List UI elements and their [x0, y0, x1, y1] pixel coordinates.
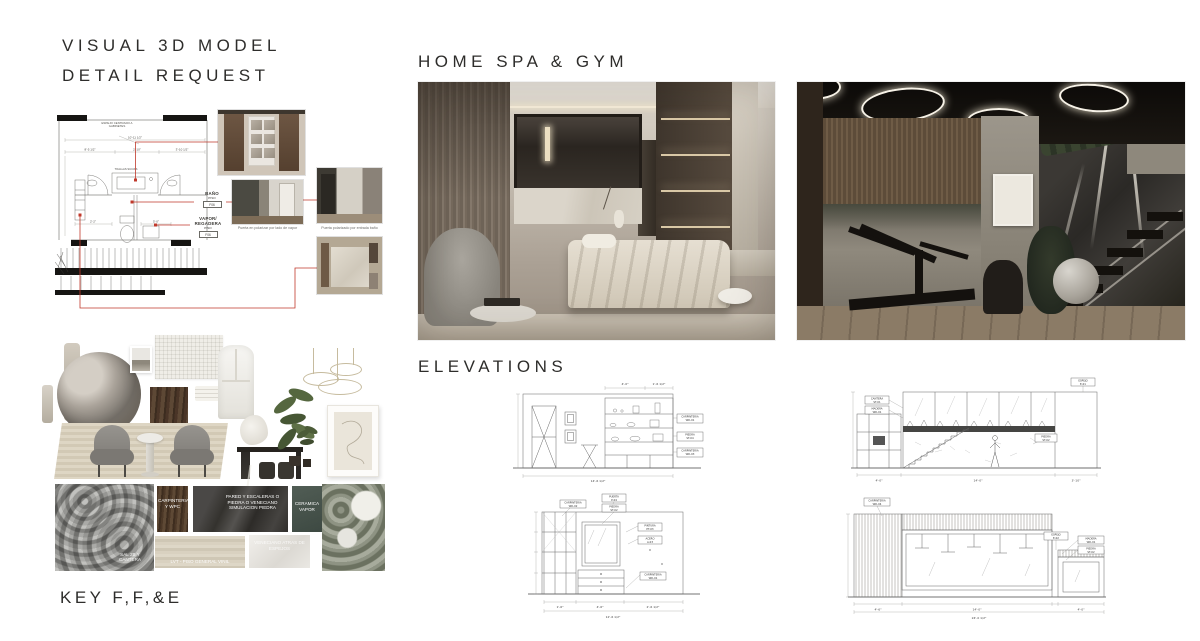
- e1-dim2: 1'-6 1/2": [653, 382, 667, 386]
- art-canvas: [334, 412, 372, 470]
- swatch-veneciano-label: VENECIANO ATRAS DE ESPEJOS: [251, 540, 308, 551]
- chair-seat: [90, 449, 134, 465]
- chair-seat: [170, 449, 214, 465]
- e2-callout1-line2: ST-01: [873, 400, 881, 404]
- e3-dim2: 4'-6": [596, 605, 604, 609]
- e1-callout2-line1: PIEDRA: [685, 433, 695, 437]
- wood-door-right: [279, 114, 299, 171]
- steam-door-thumbnail: [232, 180, 303, 224]
- gym-render: [797, 82, 1185, 340]
- bath-entry-thumbnail: [317, 168, 382, 223]
- plan-label-vapor-sub: PISO: [190, 226, 226, 230]
- e3-callout-right2-line2: A-03: [647, 540, 653, 544]
- dark-wood-swatch: [150, 387, 188, 423]
- e3-dim-text: 1'-6" 4'-6" 2'-6 1/2" 12'-6 1/2": [556, 605, 660, 619]
- e4-callout3-line1: MADERA: [1085, 536, 1096, 540]
- thumbnail-floor: [317, 214, 382, 223]
- e1-drawing: [513, 394, 701, 468]
- wall-sconce-small: [42, 385, 53, 423]
- table-top: [137, 433, 163, 443]
- caption-steam-door: Puerta en polarizar por lado de vapor: [230, 226, 305, 230]
- e2-dim2: 14'-0": [973, 479, 983, 483]
- e3-callout-right2-line1: ACERO: [645, 536, 654, 540]
- e2-callout3-line1: ESPEJO: [1078, 378, 1087, 382]
- presentation-board: VISUAL 3D MODEL DETAIL REQUEST HOME SPA …: [0, 0, 1200, 641]
- page-title-line1: VISUAL 3D MODEL: [62, 36, 281, 56]
- e2-callout3-line2: E-01: [1080, 382, 1086, 386]
- polarized-door: [279, 183, 295, 219]
- wood-slat-wall: [823, 118, 981, 204]
- chandelier-stem: [353, 348, 354, 365]
- robe-opening: [235, 349, 237, 380]
- swatch-veneciano: VENECIANO ATRAS DE ESPEJOS: [249, 535, 310, 568]
- plant-pot: [303, 459, 311, 467]
- e1-shelf-objects: [610, 403, 663, 441]
- e2-callout-boxes: [865, 378, 1095, 442]
- e3-callout-top1-line2: P-04: [611, 498, 617, 502]
- elevation-stair-wall: CANTERA ST-01 MADERA WD-01 ESPEJO E-01 P…: [845, 372, 1105, 484]
- plant-leaf: [300, 438, 314, 445]
- e3-dim3: 2'-6 1/2": [647, 605, 661, 609]
- elevation-vanity-wall: CARPINTERIA WD-02 PUERTA P-04 PIEDRA ST-…: [510, 492, 710, 620]
- e4-callout3-line2: WD-01: [1087, 540, 1096, 544]
- e2-callout2-line2: WD-01: [873, 410, 882, 414]
- swatch-lvt-floor: LVT - PISO GENERAL VINIL: [155, 536, 245, 568]
- ffe-mood-board: [40, 333, 392, 483]
- robe-belt: [222, 380, 249, 382]
- exercise-ball: [1053, 258, 1099, 304]
- e1-dim3: 14'-6 1/2": [591, 479, 606, 483]
- e2-dim-text: 4'-0" 14'-0" 3'-10": [875, 479, 1081, 483]
- chandelier-ring: [318, 379, 362, 395]
- chandelier-stem: [313, 348, 314, 374]
- plan-note-toallas: TOALLAS SUCIAS: [115, 167, 138, 171]
- e4-dim-total: 24'-0 1/2": [972, 616, 987, 620]
- photo-image: [132, 348, 150, 371]
- e1-dim1: 4'-0": [621, 382, 629, 386]
- chair-leg: [178, 465, 180, 477]
- e3-dim1: 1'-6": [556, 605, 564, 609]
- plan-dimension-labels: 10'-11 1/2" 8'-5 1/2" 2'-10" 3'-10 1/2" …: [85, 136, 189, 224]
- marble-vein: [246, 465, 251, 487]
- e4-callout2-line1: ESPEJO: [1051, 532, 1060, 536]
- e3-dim-total: 12'-6 1/2": [606, 615, 621, 619]
- chair-leg: [98, 465, 100, 477]
- e2-dim3: 3'-10": [1071, 479, 1081, 483]
- dark-wood-wall: [797, 82, 823, 340]
- plan-dim-c: 3'-10 1/2": [176, 148, 189, 152]
- plan-fixtures: [55, 136, 199, 290]
- e1-dim-lines: [516, 386, 677, 478]
- e2-callout4-line1: PIEDRA: [1041, 434, 1051, 438]
- marble-tile: [251, 148, 262, 158]
- e2-callout1-line1: CANTERA: [871, 396, 883, 400]
- marble-tile: [251, 120, 262, 130]
- marble-tile: [264, 120, 275, 130]
- e3-callout-right1-line1: PINTURA: [644, 523, 655, 527]
- bathroom-top-view-thumbnail: [317, 237, 382, 294]
- e3-callout-top1-line1: PUERTA: [609, 494, 619, 498]
- plan-dim-d: 2'-2": [90, 220, 96, 224]
- plan-label-bano-code: F06: [203, 201, 222, 208]
- e4-dim1: 4'-6": [874, 608, 882, 612]
- spa-render: [418, 82, 775, 340]
- swatch-ceramic-label: CERAMICA VAPOR: [293, 501, 321, 512]
- plan-dim-a: 8'-5 1/2": [85, 148, 96, 152]
- armchair-right: [170, 425, 214, 477]
- swatch-wood-label: CARPINTERIA Y WPC: [158, 498, 187, 509]
- chair-leg: [124, 465, 126, 477]
- e2-callout4-line2: ST-02: [1042, 438, 1050, 442]
- reflected-treadmill: [848, 226, 916, 256]
- mirror-reflection: [823, 204, 981, 230]
- e4-callout1-line2: WD-04: [873, 502, 882, 506]
- e1-callout3-line1: CARPINTERIA: [681, 449, 698, 453]
- console-marble-leg: [241, 452, 250, 479]
- swatch-carpentry-wpc: CARPINTERIA Y WPC: [157, 486, 188, 532]
- e2-person: [990, 436, 1000, 467]
- stair-step: [1107, 248, 1143, 257]
- shower-fixture: [369, 243, 378, 263]
- swatch-steam-ceramic: CERAMICA VAPOR: [292, 486, 322, 532]
- e3-callout-top2-line1: PIEDRA: [609, 504, 619, 508]
- plan-label-vapor-code: F06: [199, 231, 218, 238]
- framed-art: [993, 174, 1033, 226]
- plan-walls: [55, 115, 207, 295]
- e3-callout-right3-line2: WD-01: [649, 576, 658, 580]
- e3-callout-top2-line2: ST-02: [610, 508, 618, 512]
- stair-step: [1147, 212, 1183, 221]
- ring-chandelier: [303, 348, 363, 396]
- stair-step: [1127, 230, 1163, 239]
- swatch-wall-stone: PARED Y ESCALERAS O PIEDRA O VENECIANO S…: [193, 486, 288, 532]
- vignette: [418, 82, 775, 340]
- plan-dim-e: 5'-0": [153, 220, 159, 224]
- e4-dim2: 14'-0": [972, 608, 982, 612]
- section-title-home-spa-gym: HOME SPA & GYM: [418, 52, 628, 72]
- wc-fixture: [369, 273, 378, 289]
- e4-drawing: [848, 514, 1106, 597]
- marble-tile: [264, 148, 275, 158]
- elevation-mirror-wall: CARPINTERIA WD-04 ESPEJO E-02 MADERA WD-…: [840, 492, 1110, 620]
- plan-dim-top: 10'-11 1/2": [128, 136, 142, 140]
- e3-dim-lines: [534, 502, 683, 613]
- framed-line-art: [327, 405, 379, 477]
- line-sketch: [334, 412, 372, 470]
- plan-label-vapor: VAPOR/ REGADERA PISO F06: [190, 216, 226, 238]
- e4-callout1-line1: CARPINTERIA: [868, 498, 885, 502]
- closet-detail-thumbnail: [218, 110, 305, 175]
- e3-drawing: [528, 512, 700, 594]
- page-title-line2: DETAIL REQUEST: [62, 66, 270, 86]
- treadmill-post: [915, 250, 923, 302]
- swatch-accent-stone: [322, 484, 385, 571]
- e1-callout3-line2: WD-03: [686, 452, 695, 456]
- small-potted-plant: [296, 427, 318, 467]
- plan-note-espejo: ESPEJO CENTRADO A GABINETES: [101, 122, 133, 129]
- vanity-cabinet: [321, 243, 329, 287]
- gym-armchair: [983, 260, 1023, 314]
- swatch-granite-label: SAL 2B Y CANTERA: [109, 552, 151, 563]
- table-base: [141, 472, 159, 477]
- caption-entry-door: Puerta polarizado por entrada baño: [315, 226, 384, 230]
- e1-callout1-line1: CARPINTERIA: [681, 415, 698, 419]
- thumbnail-floor: [232, 216, 303, 224]
- e4-dim-text: 4'-6" 14'-0" 4'-0" 24'-0 1/2": [874, 608, 1085, 621]
- bathrobe: [218, 345, 254, 419]
- plan-dim-b: 2'-10": [133, 148, 141, 152]
- round-side-table: [137, 433, 163, 477]
- dark-cabinet: [321, 174, 335, 218]
- e1-callout2-line2: ST-04: [686, 436, 694, 440]
- fabric-swatch: [155, 335, 223, 379]
- e3-callout-left-line2: WD-02: [569, 504, 578, 508]
- armchair-left: [90, 425, 134, 477]
- table-stem: [146, 440, 154, 472]
- e1-callout1-line2: WD-01: [686, 418, 695, 422]
- e4-callout2-line2: E-02: [1053, 536, 1059, 540]
- marble-tile: [264, 134, 275, 144]
- framed-photo: [130, 346, 152, 373]
- swatch-granite: SAL 2B Y CANTERA: [55, 484, 154, 571]
- chair-leg: [204, 465, 206, 477]
- section-title-key-ffe: KEY F,F,&E: [60, 588, 183, 608]
- chandelier-ring: [330, 363, 362, 376]
- elevation-spa-shelves: CARPINTERIA WD-01 PIEDRA ST-04 CARPINTER…: [505, 372, 705, 484]
- e2-dim1: 4'-0": [875, 479, 883, 483]
- plan-label-bano: BAÑO PISO F06: [194, 191, 230, 208]
- e4-callout4-line2: ST-02: [1087, 550, 1095, 554]
- swatch-lvt-label: LVT - PISO GENERAL VINIL: [157, 559, 243, 565]
- wood-door-left: [224, 114, 244, 171]
- e3-callout-left-line1: CARPINTERIA: [564, 500, 581, 504]
- plan-label-bano-sub: PISO: [194, 196, 230, 200]
- e2-plants: [907, 420, 1045, 426]
- plan-dimensions: [65, 138, 205, 236]
- swatch-stone-label: PARED Y ESCALERAS O PIEDRA O VENECIANO S…: [219, 494, 286, 511]
- e3-callout-right3-line1: CARPINTERIA: [644, 572, 661, 576]
- e4-dim3: 4'-0": [1077, 608, 1085, 612]
- marble-tile: [251, 134, 262, 144]
- e3-callout-right1-line2: PT-03: [646, 527, 653, 531]
- e2-callout2-line1: MADERA: [871, 406, 882, 410]
- marble-floor: [331, 247, 369, 287]
- e4-callout4-line1: PIEDRA: [1086, 546, 1096, 550]
